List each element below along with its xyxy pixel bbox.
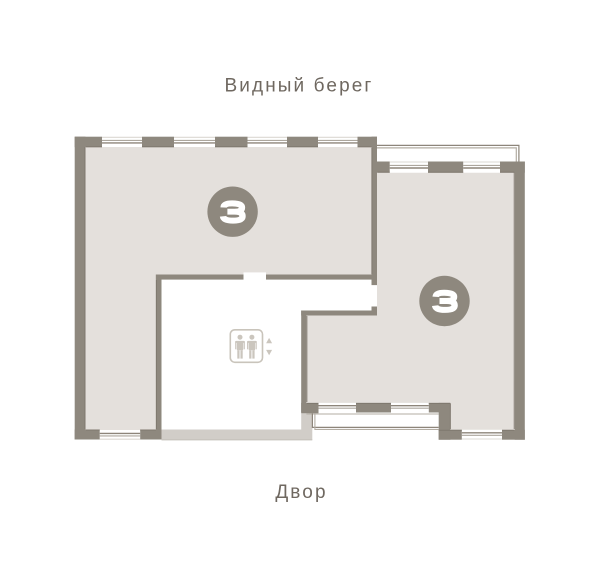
svg-text:Двор: Двор bbox=[275, 482, 327, 503]
svg-text:Видный берег: Видный берег bbox=[225, 76, 374, 97]
